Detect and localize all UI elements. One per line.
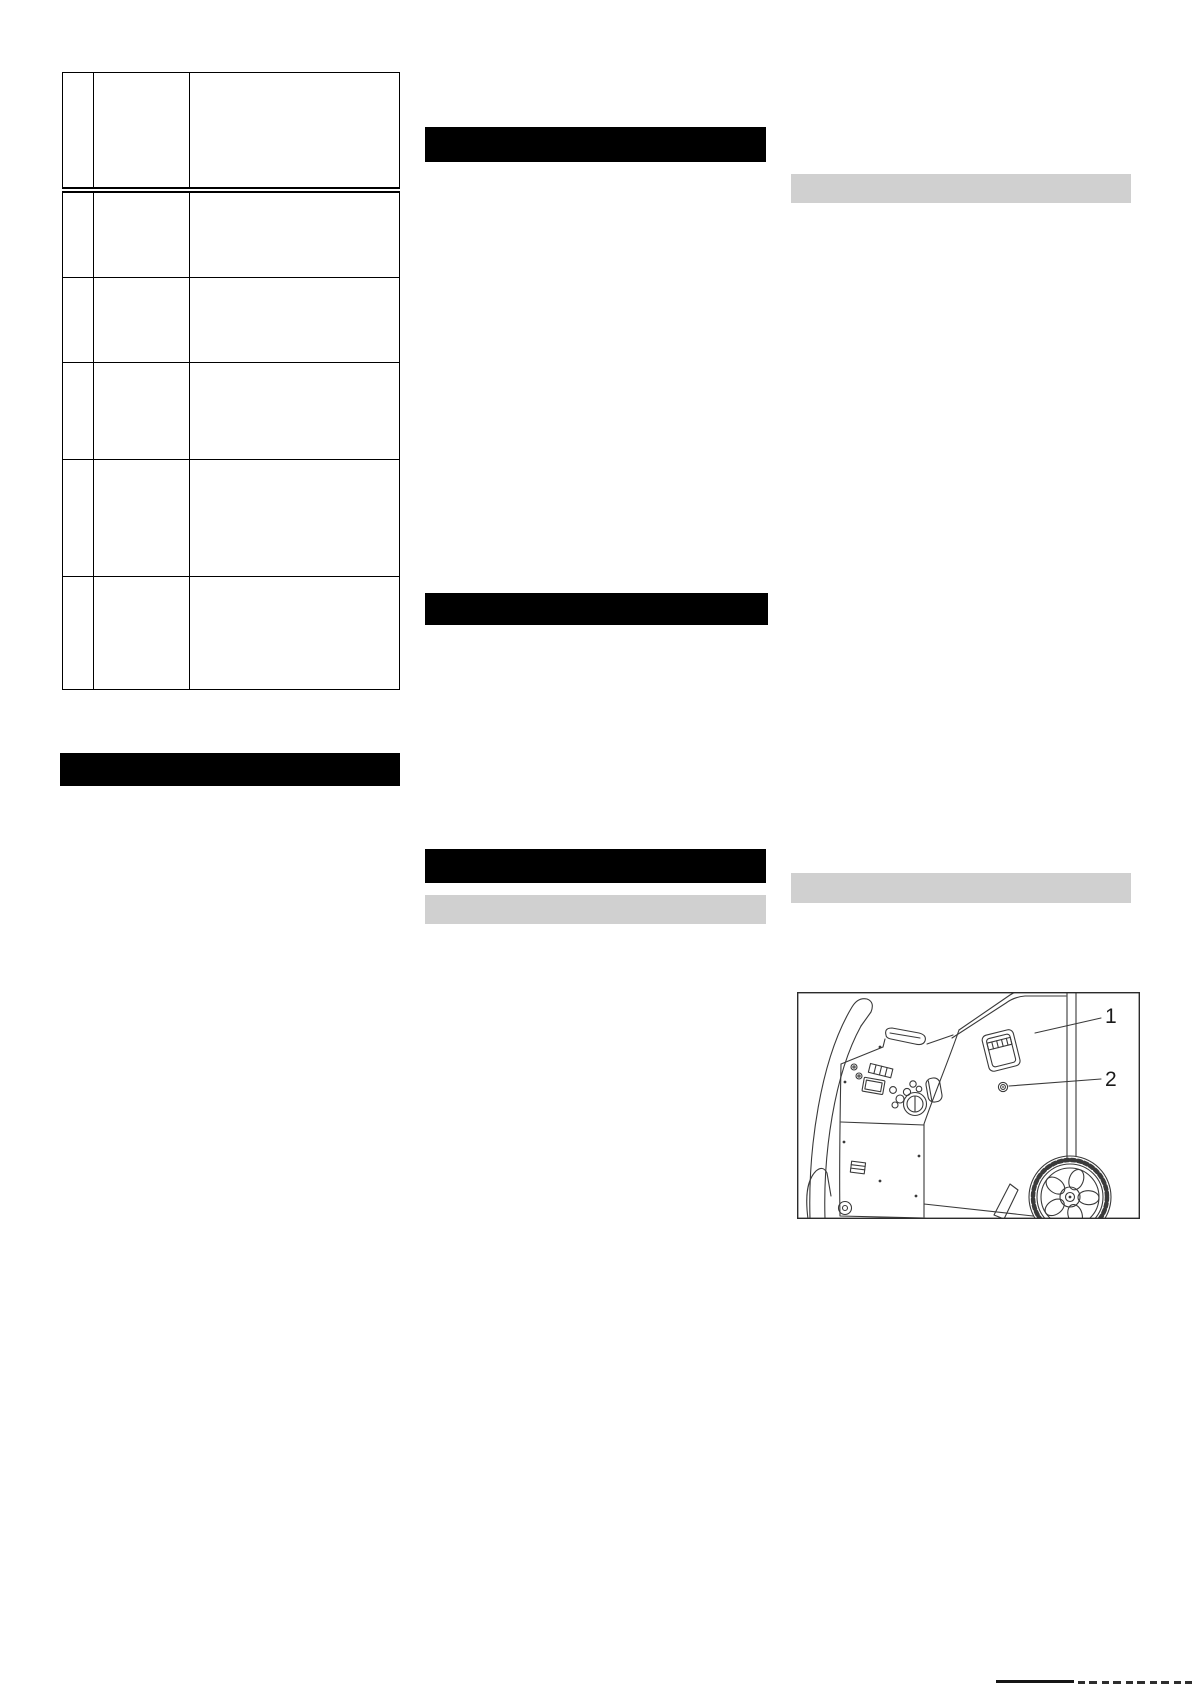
machine-line-art: [807, 992, 1111, 1219]
redacted-heading-bar-mid-1: [425, 127, 766, 162]
table-cell: [94, 278, 190, 363]
table-cell: [63, 460, 94, 577]
redacted-heading-bar-left: [60, 753, 400, 786]
callout-1-label: 1: [1105, 1005, 1117, 1028]
redacted-heading-bar-mid-2: [425, 593, 768, 625]
table-row: [63, 278, 400, 363]
machine-illustration: 1 2: [797, 992, 1140, 1219]
subheading-bar-mid: [425, 895, 766, 924]
table-row: [63, 577, 400, 690]
table-cell: [190, 577, 400, 690]
cap-part-2: [998, 1082, 1007, 1091]
table-row: [63, 460, 400, 577]
table-cell: [190, 73, 400, 191]
table-cell: [63, 363, 94, 460]
side-handle-part-1: [981, 1029, 1021, 1073]
reference-table-body: [63, 73, 400, 690]
table-cell: [63, 278, 94, 363]
footer-text-remnant: [1078, 1681, 1192, 1684]
illustration-frame: [798, 993, 1140, 1219]
page: 1 2: [0, 0, 1192, 1685]
reference-table: [62, 72, 400, 690]
subheading-bar-right-1: [791, 174, 1131, 203]
table-cell: [94, 190, 190, 278]
callout-2-label: 2: [1105, 1068, 1117, 1091]
table-cell: [190, 278, 400, 363]
table-row: [63, 190, 400, 278]
vent-box: [850, 1161, 865, 1174]
table-cell: [190, 460, 400, 577]
table-cell: [63, 73, 94, 191]
redacted-heading-bar-mid-3: [425, 849, 766, 883]
table-cell: [63, 190, 94, 278]
subheading-bar-right-2: [791, 873, 1131, 903]
machine-illustration-drawing: 1 2: [797, 992, 1140, 1219]
panel-display: [862, 1077, 885, 1094]
table-row: [63, 363, 400, 460]
table-row: [63, 73, 400, 191]
top-grip: [886, 1028, 926, 1045]
control-panel: [850, 1063, 943, 1173]
callout-2-line: [1009, 1079, 1101, 1086]
footer-rule-remnant: [996, 1680, 1074, 1683]
table-cell: [190, 190, 400, 278]
table-cell: [94, 460, 190, 577]
wheel: [1029, 1156, 1111, 1219]
callout-1-line: [1035, 1018, 1101, 1033]
table-cell: [94, 363, 190, 460]
table-cell: [94, 73, 190, 191]
table-cell: [94, 577, 190, 690]
table-cell: [63, 577, 94, 690]
table-cell: [190, 363, 400, 460]
panel-dial: [904, 1093, 927, 1116]
